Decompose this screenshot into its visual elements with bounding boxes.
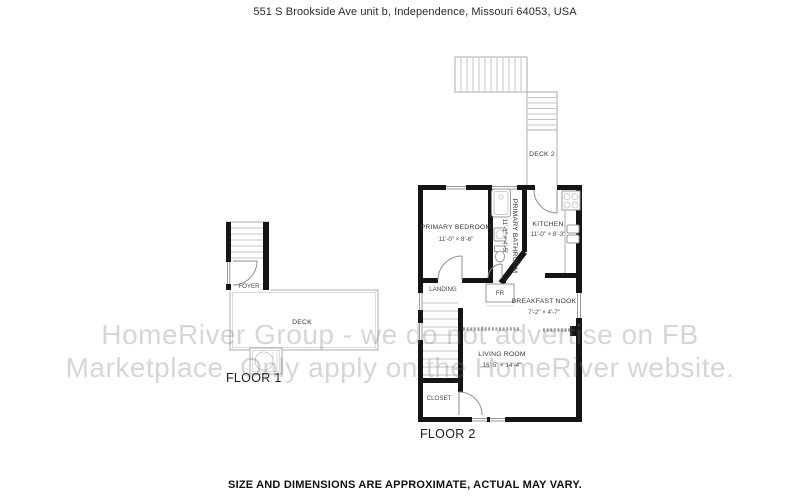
primary-bedroom-dims: 11'-0" × 8'-6" bbox=[439, 236, 474, 243]
watermark-line-2: Marketplace. Only apply on the HomeRiver… bbox=[0, 351, 800, 384]
bathtub-icon bbox=[492, 189, 511, 217]
kitchen-dims: 11'-0" × 8'-3" bbox=[531, 231, 566, 238]
floor2-label: FLOOR 2 bbox=[420, 427, 476, 441]
bedroom-door-icon bbox=[438, 256, 462, 280]
deck2-label: DECK 2 bbox=[529, 151, 555, 158]
floor2-stairs-icon bbox=[423, 303, 458, 375]
foyer-label: FOYER bbox=[238, 283, 260, 290]
stove-icon bbox=[562, 191, 580, 210]
living-room-dims: 16'-5" × 14'-4" bbox=[483, 362, 522, 369]
closet-label: CLOSET bbox=[427, 395, 452, 402]
primary-bedroom-label: PRIMARY BEDROOM bbox=[421, 224, 492, 231]
deck2-structure bbox=[455, 57, 557, 185]
closet-door-icon bbox=[459, 392, 482, 415]
floor2-drawing: DECK 2 bbox=[410, 50, 595, 430]
address-header: 551 S Brookside Ave unit b, Independence… bbox=[30, 6, 800, 18]
floor1-plan: FOYER DECK bbox=[220, 215, 400, 395]
primary-bathroom-dims: 11'-1" × 4'-5" bbox=[501, 219, 508, 254]
floor2-plan: DECK 2 bbox=[410, 50, 595, 435]
kitchen-entry-door-icon bbox=[534, 190, 557, 213]
watermark: HomeRiver Group - we do not advertise on… bbox=[0, 318, 800, 384]
floor1-drawing: FOYER DECK bbox=[220, 215, 400, 390]
breakfast-nook-dims: 7'-2" × 4'-7" bbox=[528, 309, 560, 316]
floorplan-page: 551 S Brookside Ave unit b, Independence… bbox=[0, 0, 800, 499]
kitchen-label: KITCHEN bbox=[532, 221, 563, 228]
landing-label: LANDING bbox=[429, 286, 457, 293]
floor1-label: FLOOR 1 bbox=[226, 371, 282, 385]
foyer-structure bbox=[224, 220, 271, 291]
primary-bathroom-label: PRIMARY BATHROOM bbox=[511, 199, 518, 274]
fridge-label: FR bbox=[496, 290, 505, 297]
deck-label: DECK bbox=[292, 319, 312, 326]
watermark-line-1: HomeRiver Group - we do not advertise on… bbox=[0, 318, 800, 351]
breakfast-nook-label: BREAKFAST NOOK bbox=[512, 298, 577, 305]
living-room-label: LIVING ROOM bbox=[478, 351, 526, 358]
size-disclaimer: SIZE AND DIMENSIONS ARE APPROXIMATE, ACT… bbox=[10, 479, 800, 491]
